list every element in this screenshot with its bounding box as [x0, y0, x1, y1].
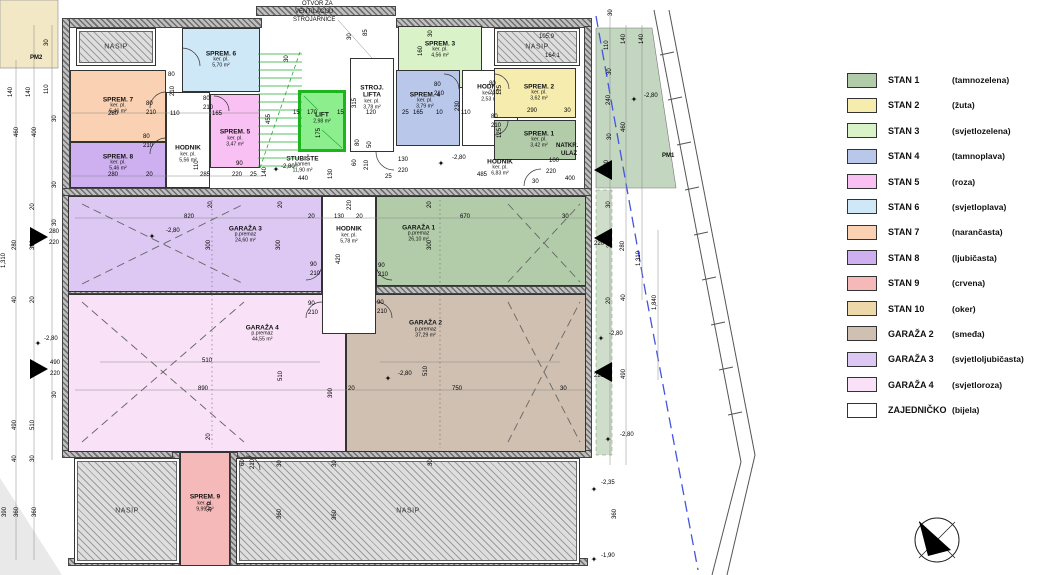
legend-label: STAN 10	[888, 304, 952, 314]
legend-item-stan-2: STAN 2(žuta)	[847, 97, 1057, 113]
legend-item-stan-8: STAN 8(ljubičasta)	[847, 250, 1057, 266]
legend-swatch	[847, 123, 877, 138]
legend-item-stan-4: STAN 4(tamnoplava)	[847, 148, 1057, 164]
legend-label: GARAŽA 3	[888, 354, 952, 364]
legend-swatch	[847, 149, 877, 164]
legend-color-name: (ljubičasta)	[952, 253, 997, 263]
legend-label: GARAŽA 4	[888, 380, 952, 390]
legend-color-name: (smeđa)	[952, 329, 985, 339]
legend-item-stan-6: STAN 6(svjetloplava)	[847, 199, 1057, 215]
legend-label: STAN 6	[888, 202, 952, 212]
legend-swatch	[847, 301, 877, 316]
annotation-pm2: PM2	[30, 55, 42, 62]
legend-swatch	[847, 73, 877, 88]
legend-swatch	[847, 225, 877, 240]
legend-item-stan-9: STAN 9(crvena)	[847, 275, 1057, 291]
legend-item-stan-1: STAN 1(tamnozelena)	[847, 72, 1057, 88]
legend-swatch	[847, 174, 877, 189]
legend-item-stan-3: STAN 3(svjetlozelena)	[847, 123, 1057, 139]
legend-color-name: (bijela)	[952, 405, 979, 415]
legend-item-gara-a-2: GARAŽA 2(smeđa)	[847, 326, 1057, 342]
legend-item-stan-7: STAN 7(narančasta)	[847, 224, 1057, 240]
legend-label: ZAJEDNIČKO	[888, 405, 952, 415]
legend-item-stan-10: STAN 10(oker)	[847, 301, 1057, 317]
legend-label: GARAŽA 2	[888, 329, 952, 339]
legend-label: STAN 9	[888, 278, 952, 288]
legend-label: STAN 7	[888, 227, 952, 237]
legend-swatch	[847, 403, 877, 418]
legend-color-name: (roza)	[952, 177, 975, 187]
legend-color-name: (oker)	[952, 304, 976, 314]
annotation-otvor-za: OTVOR ZA	[302, 1, 333, 8]
legend-color-name: (žuta)	[952, 100, 975, 110]
legend-label: STAN 1	[888, 75, 952, 85]
legend-color-name: (svjetloljubičasta)	[952, 354, 1024, 364]
legend-swatch	[847, 352, 877, 367]
legend-color-name: (svjetloplava)	[952, 202, 1006, 212]
legend-item-stan-5: STAN 5(roza)	[847, 174, 1057, 190]
legend-swatch	[847, 377, 877, 392]
legend-label: STAN 4	[888, 151, 952, 161]
legend-label: STAN 8	[888, 253, 952, 263]
annotation-strojarnice: STROJARNICE	[293, 17, 335, 24]
legend-swatch	[847, 326, 877, 341]
legend-label: STAN 2	[888, 100, 952, 110]
legend-color-name: (narančasta)	[952, 227, 1003, 237]
legend-label: STAN 5	[888, 177, 952, 187]
legend-swatch	[847, 199, 877, 214]
legend-color-name: (crvena)	[952, 278, 985, 288]
legend-item-gara-a-4: GARAŽA 4(svjetloroza)	[847, 377, 1057, 393]
annotation-natkr-: NATKR.	[556, 143, 578, 150]
legend-swatch	[847, 276, 877, 291]
annotation-ventilaciju: VENTILACIJU	[295, 9, 333, 16]
legend-color-name: (svjetloroza)	[952, 380, 1002, 390]
legend-swatch	[847, 98, 877, 113]
legend-item-zajedni-ko: ZAJEDNIČKO(bijela)	[847, 402, 1057, 418]
annotation-105-9: 105,9	[539, 34, 554, 41]
legend-label: STAN 3	[888, 126, 952, 136]
annotation-164-1: 164,1	[545, 53, 560, 60]
annotation-ulaz: ULAZ	[561, 151, 577, 158]
floor-plan-drawing: GARAŽA 3p.premaz24,60 m²GARAŽA 1p.premaz…	[0, 0, 1060, 575]
legend-color-name: (svjetlozelena)	[952, 126, 1011, 136]
legend: STAN 1(tamnozelena)STAN 2(žuta)STAN 3(sv…	[847, 72, 1057, 427]
legend-color-name: (tamnoplava)	[952, 151, 1005, 161]
annotation-pm1: PM1	[662, 153, 674, 160]
legend-swatch	[847, 250, 877, 265]
legend-item-gara-a-3: GARAŽA 3(svjetloljubičasta)	[847, 351, 1057, 367]
legend-color-name: (tamnozelena)	[952, 75, 1009, 85]
